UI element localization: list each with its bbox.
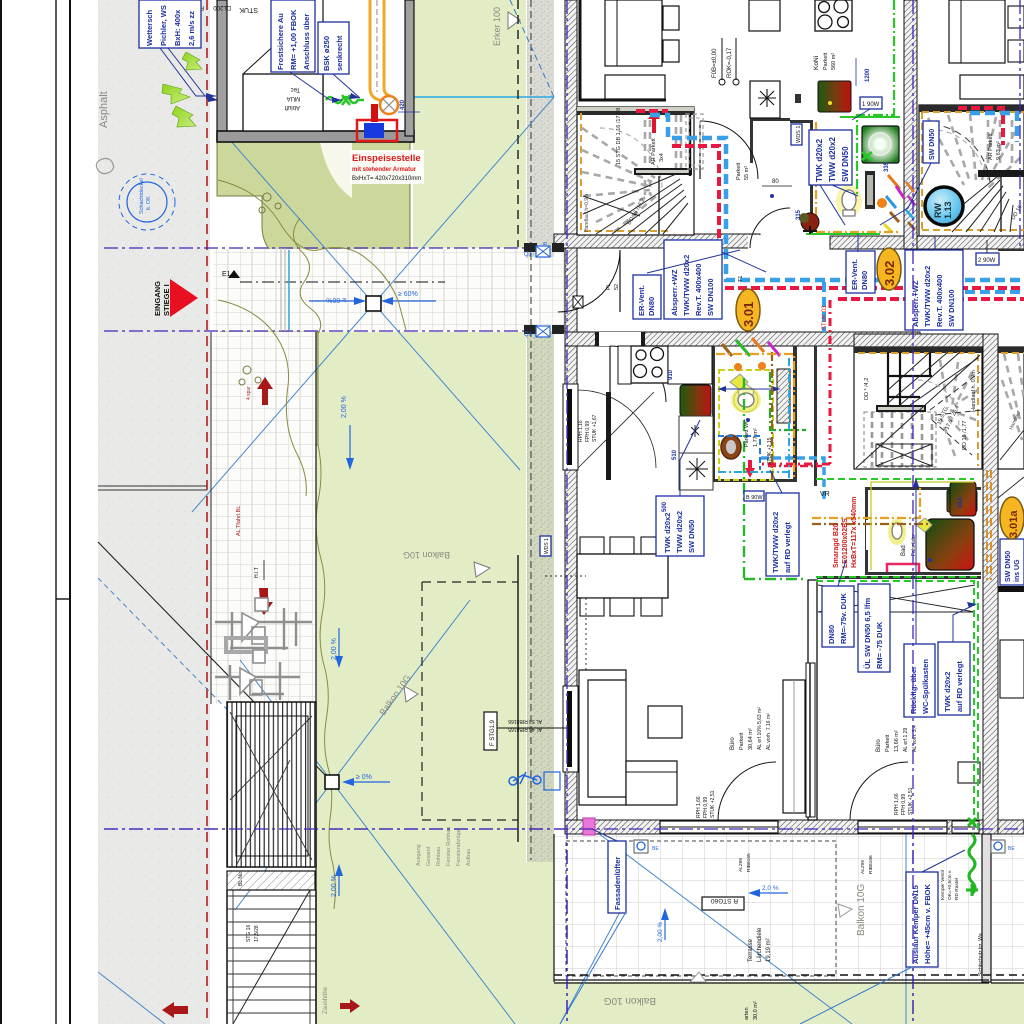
- svg-text:WDS 1: WDS 1: [796, 126, 802, 143]
- svg-text:RPH 1,16: RPH 1,16: [578, 420, 584, 442]
- svg-text:Fenster Rohbau: Fenster Rohbau: [446, 827, 452, 866]
- svg-text:55 m²: 55 m²: [744, 166, 750, 180]
- svg-text:Erker 100: Erker 100: [492, 7, 502, 46]
- svg-text:TWK d20x2: TWK d20x2: [943, 672, 952, 712]
- svg-text:Gesamt: Gesamt: [426, 846, 432, 866]
- svg-text:80: 80: [772, 179, 779, 185]
- svg-text:SW DN100: SW DN100: [947, 289, 956, 327]
- svg-text:AR Parkett: AR Parkett: [988, 133, 994, 160]
- svg-text:STUK +2,15: STUK +2,15: [767, 437, 773, 465]
- svg-text:Handlauf h=0,9m: Handlauf h=0,9m: [584, 194, 590, 232]
- svg-text:AL vorh. 7,16 m²: AL vorh. 7,16 m²: [766, 713, 772, 750]
- svg-text:Pichler, WS: Pichler, WS: [159, 5, 168, 46]
- svg-text:2,00 %: 2,00 %: [657, 922, 664, 942]
- svg-text:d14: d14: [958, 497, 964, 508]
- svg-text:STUK +1,67: STUK +1,67: [592, 414, 598, 442]
- svg-text:Balkon 10G: Balkon 10G: [403, 550, 450, 560]
- svg-text:Balkon 10G: Balkon 10G: [856, 884, 867, 936]
- svg-text:4 spur: 4 spur: [246, 386, 252, 400]
- svg-text:RIB8165: RIB8165: [746, 853, 752, 872]
- svg-text:Frostsichere Au: Frostsichere Au: [276, 13, 285, 70]
- svg-text:52: 52: [614, 284, 620, 290]
- svg-text:DN80: DN80: [827, 625, 836, 644]
- svg-text:RPH 1,66: RPH 1,66: [894, 793, 900, 815]
- svg-text:SW DN50: SW DN50: [687, 520, 696, 553]
- svg-text:Kemper Ventil: Kemper Ventil: [940, 870, 946, 900]
- svg-text:3x4: 3x4: [659, 153, 665, 162]
- svg-text:TWK d20x2: TWK d20x2: [815, 138, 824, 182]
- svg-text:Tec: Tec: [291, 86, 300, 92]
- svg-text:TWW d20x2: TWW d20x2: [675, 511, 684, 553]
- svg-text:Lärchendiele: Lärchendiele: [757, 927, 763, 962]
- svg-text:Aufbau: Aufbau: [466, 849, 472, 866]
- svg-text:RM= -75 DUK: RM= -75 DUK: [875, 621, 884, 669]
- svg-text:Fensterabzüge: Fensterabzüge: [456, 829, 462, 866]
- svg-text:15 STG DB 1,16 /17,98: 15 STG DB 1,16 /17,98: [616, 108, 622, 165]
- svg-text:T1: T1: [738, 276, 744, 282]
- svg-text:RW: RW: [933, 203, 943, 218]
- svg-text:335: 335: [884, 161, 890, 172]
- svg-text:SW DN50: SW DN50: [1005, 551, 1012, 582]
- svg-text:Absperr.+WZ: Absperr.+WZ: [670, 269, 679, 316]
- svg-text:BSK ø250: BSK ø250: [322, 36, 331, 71]
- svg-text:F0B=±0,00: F0B=±0,00: [712, 48, 718, 78]
- svg-text:SW DN50: SW DN50: [929, 129, 936, 160]
- svg-text:STUK +2,51: STUK +2,51: [710, 790, 716, 818]
- svg-text:BxH: 400x: BxH: 400x: [173, 9, 182, 46]
- svg-text:Wettersch: Wettersch: [145, 9, 154, 46]
- svg-text:1200: 1200: [865, 68, 871, 82]
- svg-text:2,00 %: 2,00 %: [341, 396, 348, 418]
- svg-text:17,5/28: 17,5/28: [254, 925, 260, 942]
- svg-text:RIB8166: RIB8166: [868, 855, 874, 874]
- svg-text:Höhe= +45cm v. FBOK: Höhe= +45cm v. FBOK: [923, 884, 932, 964]
- svg-text:DN80: DN80: [647, 297, 656, 316]
- svg-text:FPH 0,99: FPH 0,99: [703, 797, 709, 818]
- svg-text:AL299: AL299: [860, 860, 866, 874]
- svg-text:19,19 m²: 19,19 m²: [766, 938, 772, 962]
- svg-text:RPH 1,66: RPH 1,66: [696, 796, 702, 818]
- svg-text:Ausgang: Ausgang: [416, 844, 422, 866]
- svg-text:DD 16 /1,77: DD 16 /1,77: [962, 421, 968, 450]
- svg-text:R STG60: R STG60: [711, 897, 738, 904]
- svg-text:Rev.T. 400x400: Rev.T. 400x400: [935, 275, 944, 327]
- svg-text:2,6 m/s zz: 2,6 m/s zz: [187, 11, 196, 46]
- svg-text:Sichtschutz trz. Wa: Sichtschutz trz. Wa: [978, 933, 984, 976]
- svg-text:FPH 0,99: FPH 0,99: [585, 421, 591, 442]
- svg-text:BE: BE: [652, 846, 659, 852]
- svg-text:auf RD verlegt: auf RD verlegt: [783, 522, 792, 573]
- svg-text:500: 500: [662, 501, 668, 512]
- svg-text:DN80: DN80: [860, 271, 869, 290]
- svg-text:Q1: Q1: [524, 332, 533, 338]
- svg-text:B 90W: B 90W: [746, 495, 763, 501]
- svg-text:Parkett: Parkett: [885, 734, 891, 752]
- svg-text:≥ 0%: ≥ 0%: [356, 774, 372, 781]
- svg-text:Handlauf h. 0,9m: Handlauf h. 0,9m: [971, 370, 977, 412]
- svg-text:TWW d20x2: TWW d20x2: [828, 137, 837, 182]
- svg-text:VR: VR: [820, 491, 830, 498]
- svg-text:ER-Vent.: ER-Vent.: [850, 259, 859, 290]
- svg-text:SW DN50: SW DN50: [841, 146, 850, 182]
- svg-text:Büro: Büro: [730, 737, 736, 750]
- svg-text:Balkon 10G: Balkon 10G: [604, 995, 656, 1006]
- svg-text:Parkett: Parkett: [736, 162, 742, 180]
- svg-text:13,66 m²: 13,66 m²: [894, 730, 900, 752]
- svg-text:AL erf.10% 5,63 m²: AL erf.10% 5,63 m²: [757, 707, 763, 750]
- svg-text:senkrecht: senkrecht: [335, 35, 344, 71]
- svg-text:AR Parkett: AR Parkett: [651, 138, 657, 165]
- svg-text:Rev.T. 400x400: Rev.T. 400x400: [694, 264, 703, 316]
- svg-text:TWK/TWW d20x2: TWK/TWW d20x2: [923, 266, 932, 327]
- svg-text:30,0 m²: 30,0 m²: [753, 1001, 759, 1020]
- svg-text:AL 46 RIB8165: AL 46 RIB8165: [508, 726, 542, 732]
- svg-text:Smaragd B20: Smaragd B20: [833, 523, 840, 568]
- svg-text:WDS 1: WDS 1: [544, 538, 550, 554]
- svg-text:BxHxT= 420x720x310mm: BxHxT= 420x720x310mm: [352, 176, 421, 182]
- svg-text:Q1: Q1: [524, 252, 533, 258]
- svg-text:3.01a: 3.01a: [1008, 510, 1020, 538]
- svg-text:1 90W: 1 90W: [862, 102, 880, 108]
- svg-text:MUA: MUA: [287, 95, 300, 101]
- svg-text:DL200: DL200: [213, 4, 231, 10]
- svg-text:BE: BE: [1008, 846, 1015, 852]
- svg-text:DD * /4,2: DD * /4,2: [864, 378, 870, 400]
- svg-text:TWK/TWW d20x2: TWK/TWW d20x2: [771, 512, 780, 573]
- svg-text:RM=-75v. DUK: RM=-75v. DUK: [839, 593, 848, 644]
- svg-text:H.I.T: H.I.T: [254, 567, 260, 578]
- svg-text:420: 420: [400, 99, 406, 110]
- svg-text:Zaunhöhe: Zaunhöhe: [323, 986, 329, 1014]
- svg-text:lt. OK: lt. OK: [146, 196, 152, 210]
- svg-text:RM= +1,00 FBOK: RM= +1,00 FBOK: [289, 9, 298, 70]
- svg-text:AL 53 RIB8166: AL 53 RIB8166: [508, 718, 542, 724]
- svg-text:RD Rastel: RD Rastel: [954, 878, 960, 900]
- svg-text:1.13: 1.13: [943, 201, 953, 219]
- svg-text:STUK: STUK: [239, 6, 258, 13]
- svg-text:2,0 %: 2,0 %: [762, 885, 779, 892]
- svg-text:560 m²: 560 m²: [831, 53, 837, 70]
- svg-text:30,64 m²: 30,64 m²: [748, 728, 754, 750]
- svg-text:Anschluss über: Anschluss über: [302, 14, 311, 70]
- svg-text:KoNi: KoNi: [813, 56, 820, 70]
- svg-text:910: 910: [668, 369, 674, 380]
- svg-text:AL299: AL299: [738, 858, 744, 872]
- svg-text:auf RD verlegt: auf RD verlegt: [955, 661, 964, 712]
- svg-text:FPH 0,99: FPH 0,99: [901, 794, 907, 815]
- svg-text:≥ 60%: ≥ 60%: [398, 291, 418, 298]
- svg-text:510: 510: [672, 449, 678, 460]
- svg-text:2 90W: 2 90W: [978, 258, 996, 264]
- svg-text:HxBxT=117x x540mm: HxBxT=117x x540mm: [851, 497, 858, 568]
- svg-text:BL Nu: BL Nu: [238, 872, 244, 886]
- svg-text:mit stehender Armatur: mit stehender Armatur: [352, 167, 417, 173]
- svg-text:315: 315: [796, 209, 802, 220]
- svg-text:Einspeisestelle: Einspeisestelle: [352, 153, 421, 164]
- svg-text:arten: arten: [744, 1007, 750, 1020]
- svg-text:Büro: Büro: [876, 739, 882, 752]
- svg-text:STIEGE I: STIEGE I: [162, 284, 171, 316]
- svg-text:SW DN100: SW DN100: [706, 278, 715, 316]
- svg-text:Parkett: Parkett: [823, 52, 829, 70]
- svg-text:3.02: 3.02: [882, 261, 897, 286]
- svg-text:≥ 60%: ≥ 60%: [326, 296, 346, 303]
- svg-text:STUK 03: STUK 03: [822, 305, 828, 330]
- svg-text:Rohbau: Rohbau: [436, 847, 442, 866]
- svg-text:Terrasse: Terrasse: [748, 938, 754, 962]
- svg-text:Asphalt: Asphalt: [98, 91, 110, 128]
- svg-text:STG 16: STG 16: [246, 925, 252, 942]
- svg-text:Parkett: Parkett: [739, 732, 745, 750]
- svg-text:E1: E1: [222, 271, 231, 278]
- svg-text:ROK=-0,17: ROK=-0,17: [727, 47, 733, 78]
- svg-text:2,00 %: 2,00 %: [331, 875, 338, 897]
- svg-text:1,77 m²: 1,77 m²: [753, 428, 759, 447]
- svg-text:OK=+0,5cm v.: OK=+0,5cm v.: [947, 870, 953, 900]
- svg-text:Schachtdeckel: Schachtdeckel: [139, 178, 145, 214]
- svg-text:AL erf.1,29: AL erf.1,29: [903, 728, 909, 752]
- svg-text:TWK d20x2: TWK d20x2: [663, 513, 672, 553]
- svg-text:ER-Vent.: ER-Vent.: [637, 285, 646, 316]
- svg-text:AL Tfahrl.BL: AL Tfahrl.BL: [236, 506, 242, 536]
- svg-text:Fassadenlüfter: Fassadenlüfter: [613, 857, 622, 910]
- svg-text:ÜL SW DN50 6,5 lfm: ÜL SW DN50 6,5 lfm: [863, 598, 872, 669]
- svg-text:Abluft: Abluft: [284, 104, 300, 110]
- svg-text:FL: FL: [606, 284, 612, 290]
- svg-text:F STG1.9: F STG1.9: [490, 719, 496, 746]
- svg-text:3.01: 3.01: [741, 302, 756, 327]
- svg-text:EINGANG: EINGANG: [153, 281, 162, 316]
- svg-text:WC-Spülkasten: WC-Spülkasten: [921, 659, 930, 714]
- svg-text:ins UG: ins UG: [1014, 559, 1021, 582]
- svg-text:Parkett WC: Parkett WC: [744, 419, 750, 447]
- svg-text:Bad: Bad: [901, 545, 907, 556]
